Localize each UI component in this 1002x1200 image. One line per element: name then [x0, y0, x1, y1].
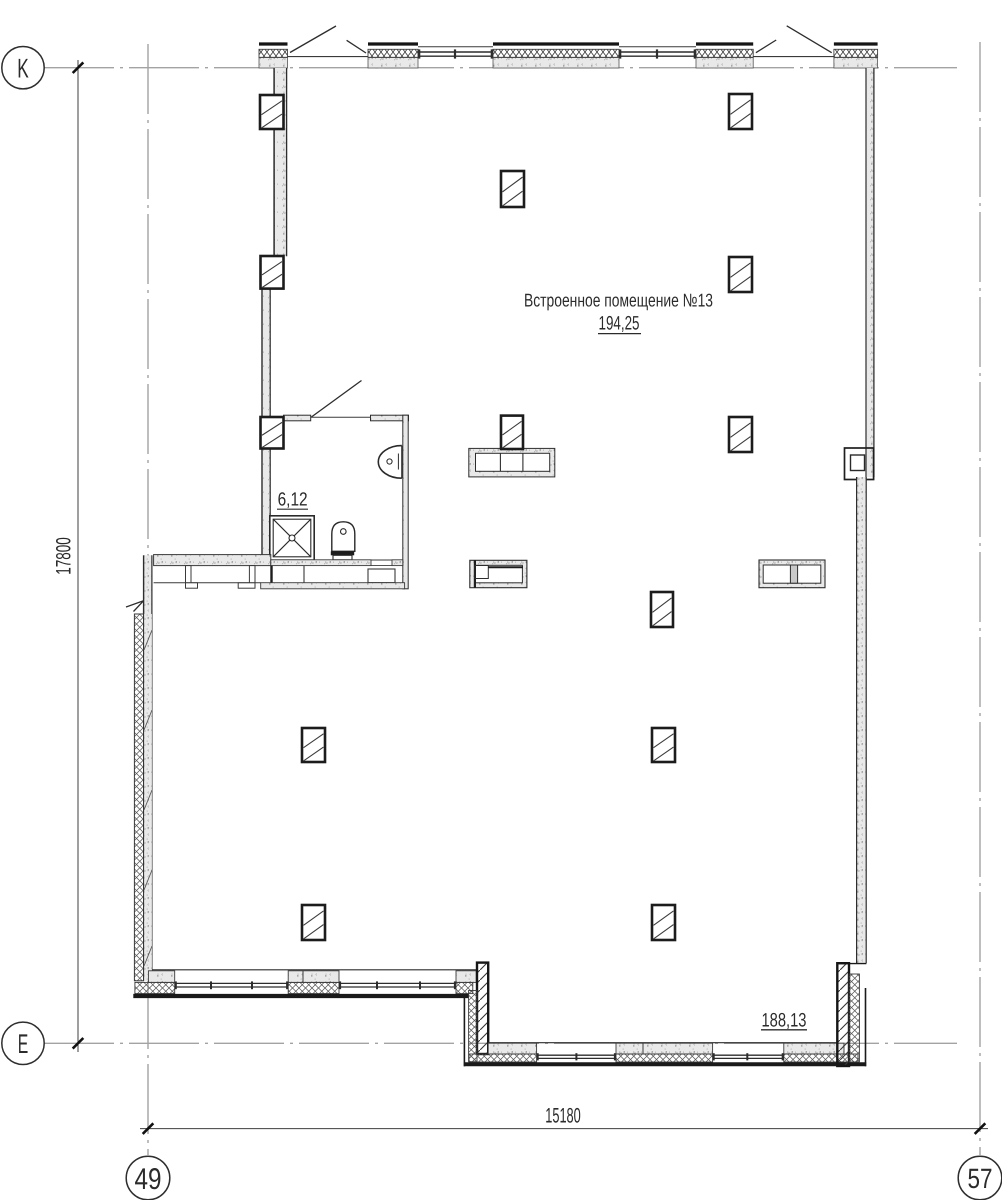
svg-text:E: E [18, 1029, 29, 1059]
svg-text:6,12: 6,12 [278, 489, 308, 510]
svg-text:194,25: 194,25 [598, 312, 639, 334]
svg-text:57: 57 [967, 1163, 992, 1194]
svg-text:K: K [17, 53, 29, 83]
svg-text:17800: 17800 [53, 537, 76, 575]
svg-text:49: 49 [134, 1163, 161, 1196]
svg-text:Встроенное помещение №13: Встроенное помещение №13 [524, 289, 713, 310]
svg-text:15180: 15180 [545, 1104, 581, 1127]
svg-text:188,13: 188,13 [761, 1009, 806, 1031]
